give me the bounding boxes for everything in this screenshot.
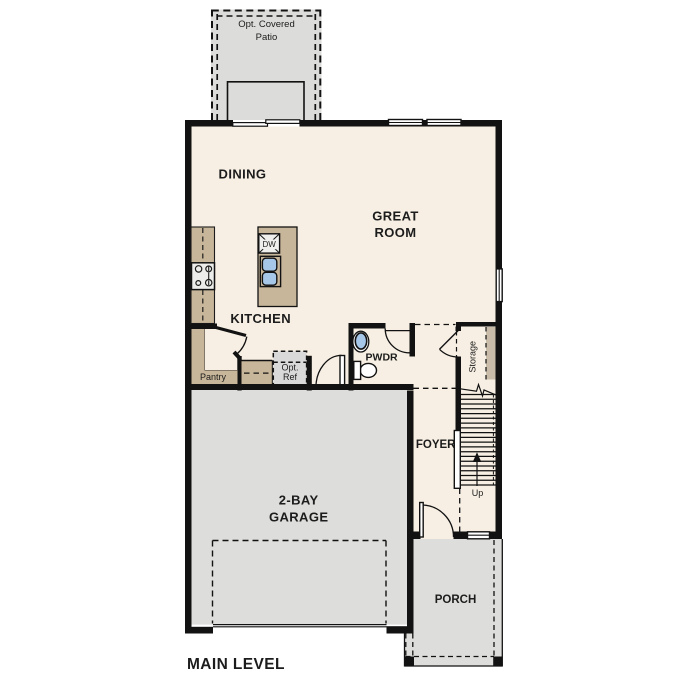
svg-text:Patio: Patio <box>256 32 278 43</box>
svg-text:FOYER: FOYER <box>416 439 456 451</box>
svg-text:PORCH: PORCH <box>435 594 477 606</box>
svg-text:GREAT: GREAT <box>372 209 419 224</box>
svg-text:DINING: DINING <box>219 167 267 182</box>
svg-text:Opt.: Opt. <box>281 362 298 372</box>
svg-text:Pantry: Pantry <box>200 372 227 382</box>
svg-text:Storage: Storage <box>468 341 478 373</box>
svg-text:Up: Up <box>472 488 484 498</box>
svg-text:Opt. Covered: Opt. Covered <box>238 19 295 30</box>
svg-text:2-BAY: 2-BAY <box>279 493 319 508</box>
svg-text:ROOM: ROOM <box>374 225 416 240</box>
svg-text:KITCHEN: KITCHEN <box>230 311 291 326</box>
svg-text:MAIN LEVEL: MAIN LEVEL <box>187 656 285 673</box>
svg-text:DW: DW <box>263 240 277 249</box>
svg-text:GARAGE: GARAGE <box>269 510 328 525</box>
svg-text:Ref: Ref <box>283 372 298 382</box>
svg-text:PWDR: PWDR <box>366 352 398 364</box>
